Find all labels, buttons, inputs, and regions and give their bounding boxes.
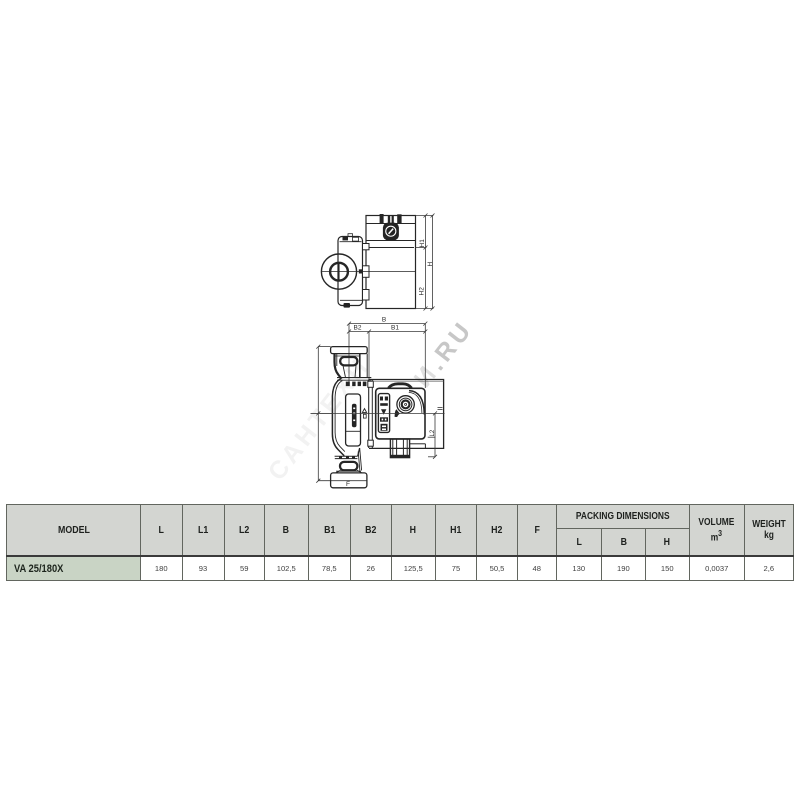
svg-text:H2: H2 bbox=[418, 287, 425, 296]
svg-text:B2: B2 bbox=[354, 325, 362, 332]
svg-text:B1: B1 bbox=[391, 325, 399, 332]
svg-text:L2: L2 bbox=[430, 429, 436, 436]
svg-text:F: F bbox=[346, 481, 350, 488]
svg-text:H: H bbox=[427, 262, 434, 267]
svg-text:B: B bbox=[382, 317, 386, 324]
svg-text:H1: H1 bbox=[419, 239, 426, 248]
